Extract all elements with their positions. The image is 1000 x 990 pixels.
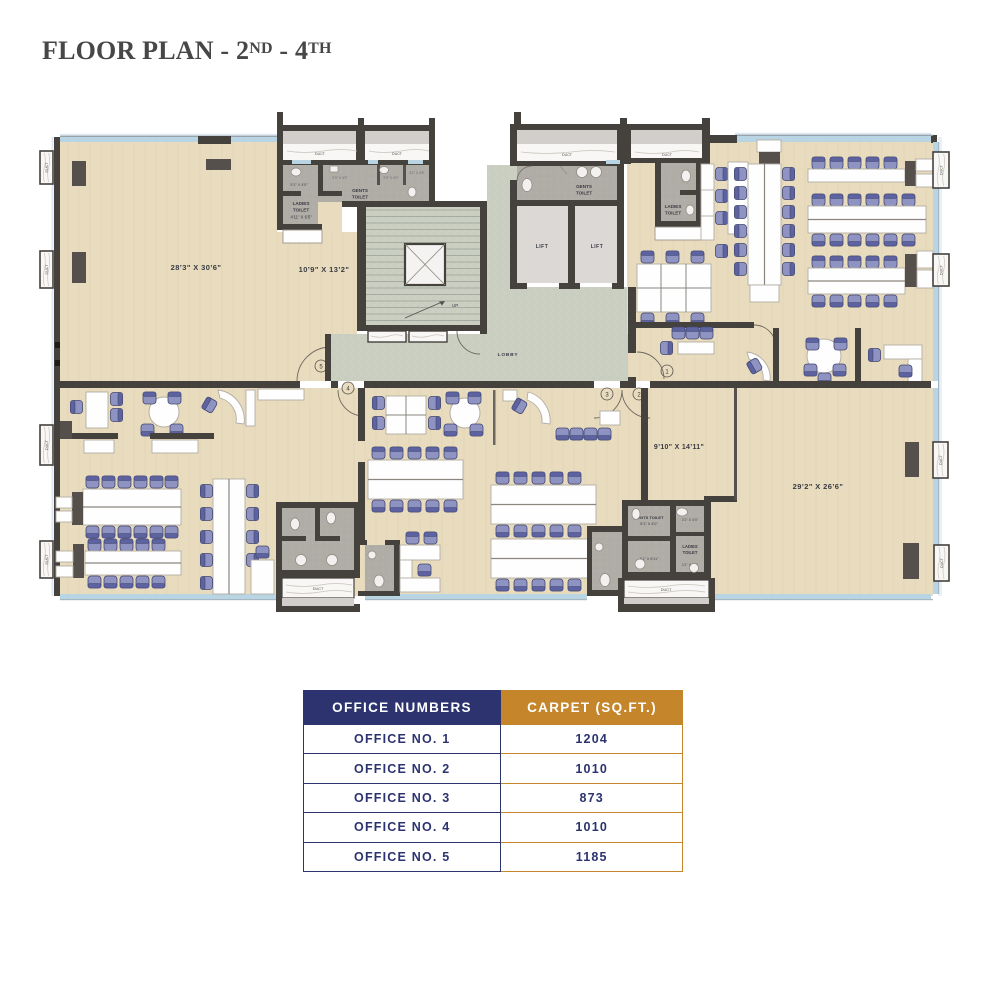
svg-text:TOILET: TOILET: [293, 208, 309, 213]
svg-text:TOILET: TOILET: [665, 211, 681, 216]
svg-text:GENTS: GENTS: [576, 184, 592, 189]
svg-text:TOILET: TOILET: [576, 191, 592, 196]
svg-text:LADIES: LADIES: [665, 204, 682, 209]
svg-text:DUCT: DUCT: [315, 152, 326, 156]
svg-text:2'0" X 4'0": 2'0" X 4'0": [383, 176, 399, 180]
svg-text:LADIES: LADIES: [293, 201, 310, 206]
svg-text:29’2" X 26’6": 29’2" X 26’6": [793, 482, 844, 491]
svg-text:3'1" X 4'5": 3'1" X 4'5": [409, 171, 425, 175]
svg-text:DUCT: DUCT: [662, 153, 673, 157]
svg-text:LADIES: LADIES: [682, 544, 698, 549]
svg-text:TOILET: TOILET: [683, 550, 698, 555]
svg-text:LOBBY: LOBBY: [498, 352, 519, 358]
svg-text:TOILET: TOILET: [352, 195, 368, 200]
svg-text:DUCT: DUCT: [661, 588, 672, 592]
svg-text:DUCT: DUCT: [939, 264, 943, 275]
svg-text:LIFT: LIFT: [536, 244, 549, 250]
svg-text:DUCT: DUCT: [45, 162, 49, 173]
svg-text:DUCT: DUCT: [45, 554, 49, 565]
svg-text:3’1" X 4’0": 3’1" X 4’0": [682, 518, 699, 522]
svg-text:UP: UP: [452, 303, 458, 308]
svg-text:2'0" X 4'0": 2'0" X 4'0": [332, 176, 348, 180]
svg-text:LIFT: LIFT: [591, 244, 604, 250]
svg-text:5'1" X 4'5": 5'1" X 4'5": [290, 183, 308, 187]
svg-text:DUCT: DUCT: [939, 164, 943, 175]
svg-text:9’10" X 14’11": 9’10" X 14’11": [654, 444, 704, 451]
svg-text:DUCT: DUCT: [313, 587, 324, 591]
svg-text:10’9" X 13’2": 10’9" X 13’2": [299, 265, 350, 274]
svg-text:DUCT: DUCT: [562, 153, 573, 157]
svg-text:DUCT: DUCT: [939, 454, 943, 465]
svg-text:4'11" X 6'5": 4'11" X 6'5": [290, 215, 312, 220]
svg-text:DUCT: DUCT: [45, 439, 49, 450]
svg-text:28’3" X 30’6": 28’3" X 30’6": [171, 263, 222, 272]
svg-text:GENTS: GENTS: [352, 188, 368, 193]
svg-text:DUCT: DUCT: [392, 152, 403, 156]
svg-text:DUCT: DUCT: [45, 264, 49, 275]
svg-text:5’1" X 4’0": 5’1" X 4’0": [640, 522, 658, 526]
svg-text:DUCT: DUCT: [940, 557, 944, 568]
